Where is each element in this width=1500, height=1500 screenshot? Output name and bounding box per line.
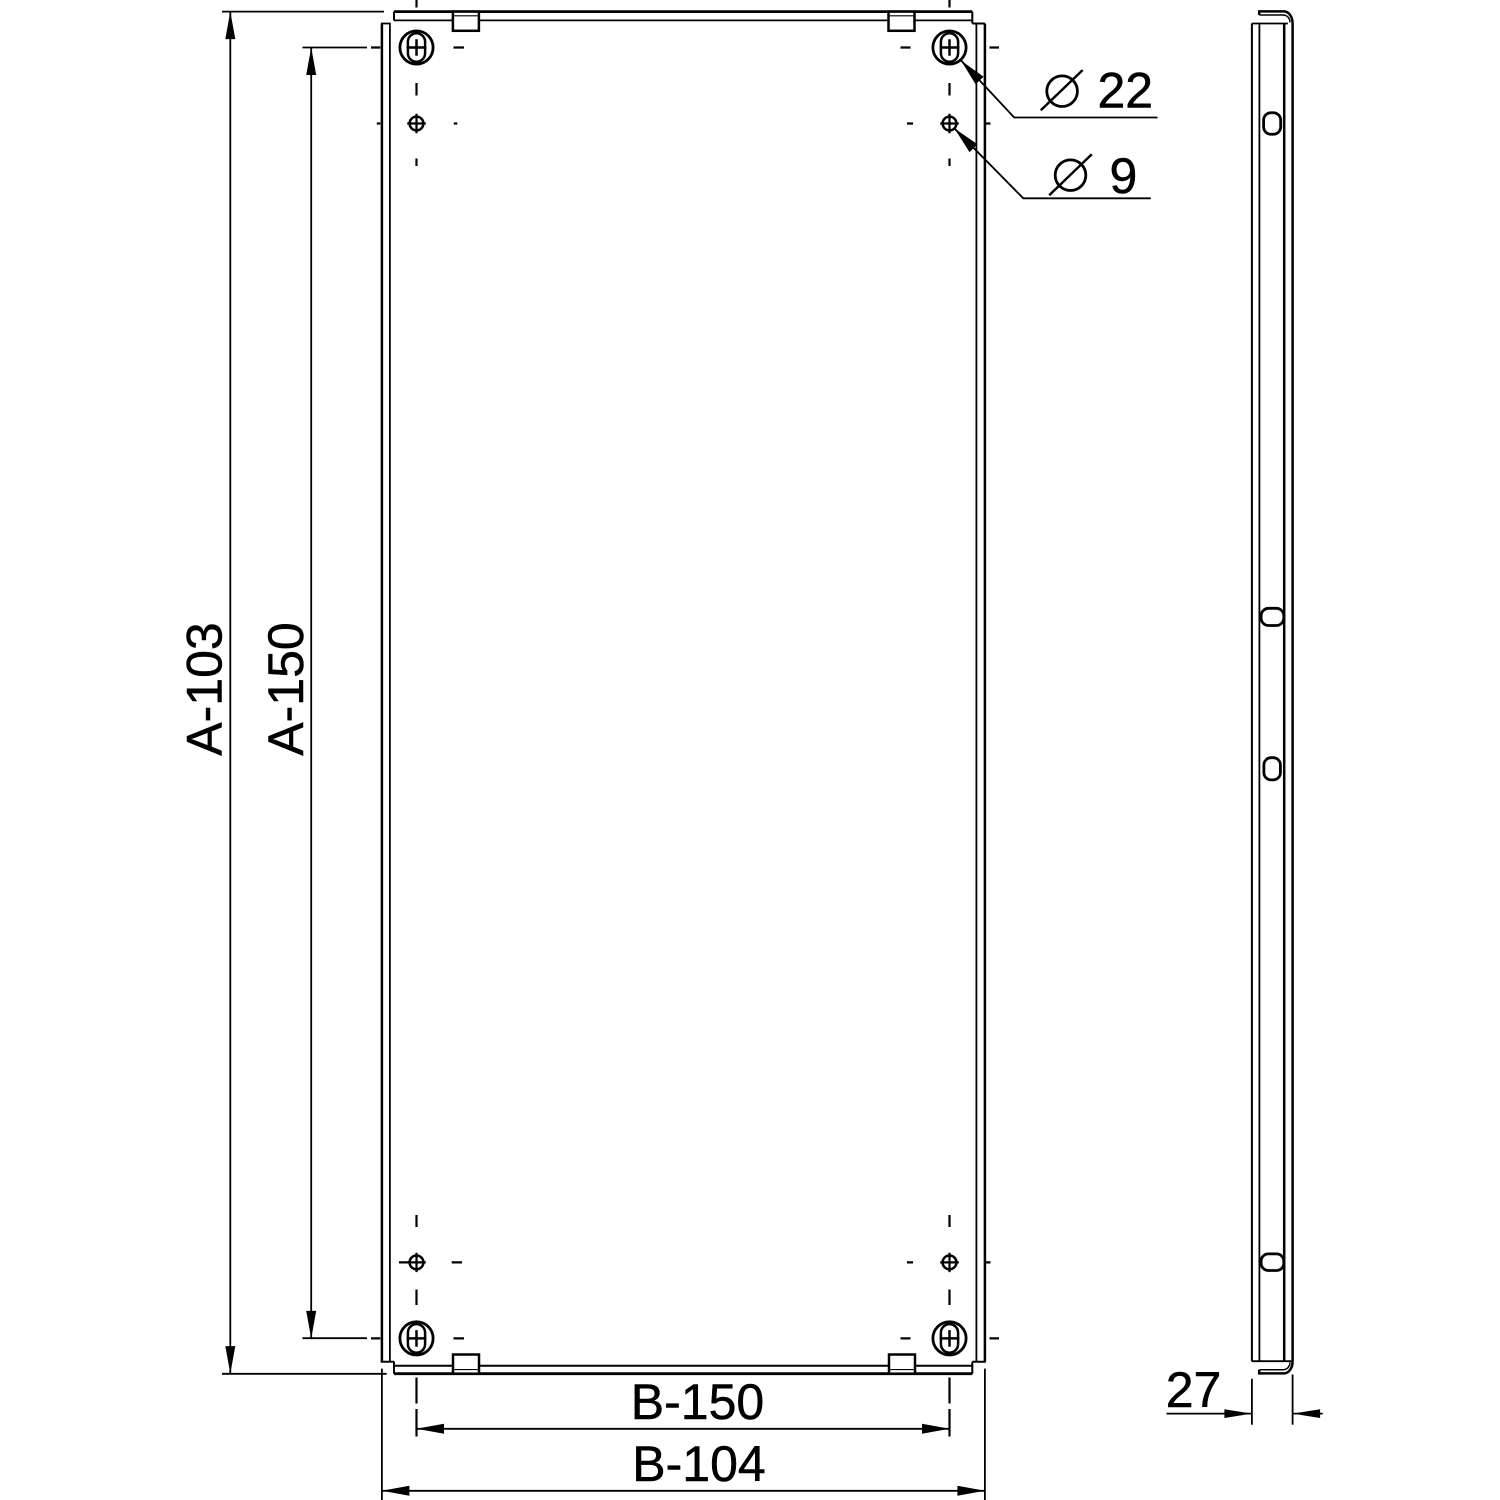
svg-text:22: 22 [1098, 63, 1154, 119]
svg-text:A-150: A-150 [258, 622, 314, 755]
svg-text:27: 27 [1166, 1362, 1222, 1418]
svg-text:9: 9 [1110, 148, 1138, 204]
svg-text:B-104: B-104 [632, 1436, 765, 1492]
svg-text:A-103: A-103 [177, 622, 233, 755]
svg-text:B-150: B-150 [631, 1374, 764, 1430]
